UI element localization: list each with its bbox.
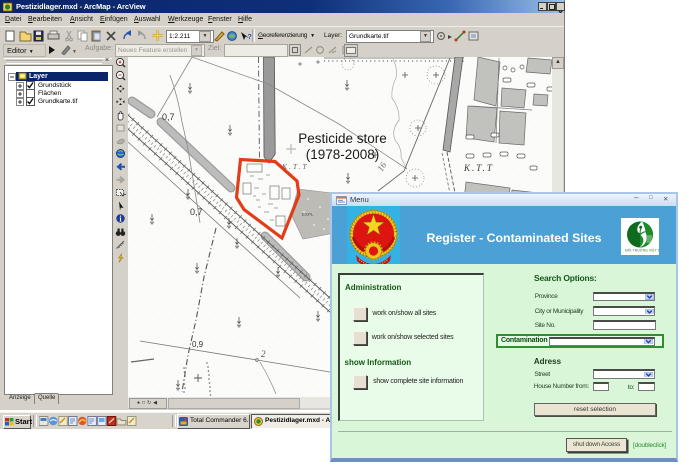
svg-text:0,7: 0,7 xyxy=(162,112,175,122)
svg-text:0,9: 0,9 xyxy=(192,340,204,349)
svg-text:▼: ▼ xyxy=(72,49,77,55)
svg-text:2: 2 xyxy=(261,349,266,359)
svg-text:K.T.T: K.T.T xyxy=(463,163,494,173)
svg-text:MÔI TRUỜNG VIỆT NAM: MÔI TRUỜNG VIỆT NAM xyxy=(625,248,659,253)
svg-text:0,7: 0,7 xyxy=(190,207,203,217)
svg-text:EXPL: EXPL xyxy=(302,212,314,217)
